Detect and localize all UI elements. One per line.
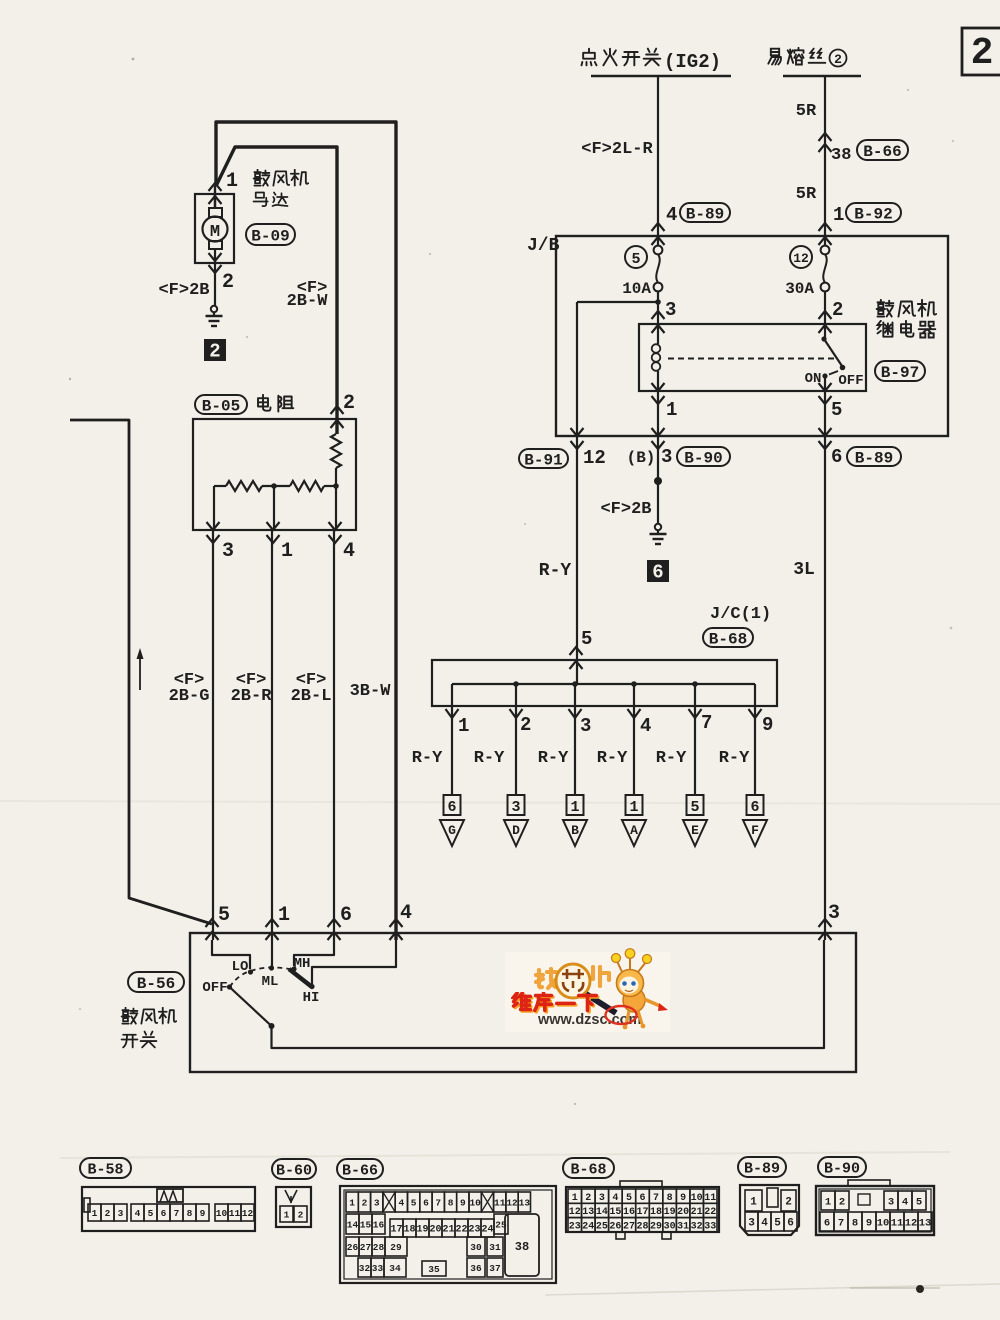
svg-text:11: 11	[891, 1217, 904, 1229]
svg-text:26: 26	[347, 1242, 359, 1253]
svg-text:29: 29	[390, 1242, 402, 1253]
svg-text:4: 4	[343, 540, 355, 563]
svg-text:3B-W: 3B-W	[350, 682, 392, 701]
svg-text:7: 7	[838, 1217, 844, 1229]
svg-text:B-09: B-09	[251, 227, 289, 245]
svg-text:21: 21	[691, 1207, 703, 1218]
svg-text:10: 10	[691, 1193, 703, 1204]
svg-text:7: 7	[653, 1193, 659, 1204]
svg-text:B-91: B-91	[524, 451, 562, 469]
svg-text:38: 38	[831, 146, 851, 165]
svg-text:OFF: OFF	[838, 373, 863, 389]
svg-text:3: 3	[222, 540, 234, 563]
svg-text:8: 8	[852, 1217, 858, 1229]
svg-text:R-Y: R-Y	[719, 749, 750, 768]
svg-text:B-68: B-68	[709, 630, 747, 648]
svg-text:B-92: B-92	[854, 205, 892, 223]
svg-text:3: 3	[748, 1217, 755, 1229]
svg-text:14: 14	[596, 1207, 608, 1218]
svg-text:6: 6	[447, 799, 456, 816]
svg-text:5: 5	[626, 1193, 632, 1204]
svg-text:B-90: B-90	[684, 449, 722, 467]
svg-text:2B-R: 2B-R	[231, 687, 273, 706]
svg-text:B-97: B-97	[881, 364, 919, 382]
svg-text:3: 3	[599, 1193, 605, 1204]
svg-text:30: 30	[470, 1242, 482, 1253]
svg-text:27: 27	[360, 1242, 372, 1253]
svg-text:2: 2	[222, 271, 234, 294]
svg-text:2: 2	[105, 1208, 111, 1219]
svg-text:33: 33	[372, 1263, 384, 1274]
svg-text:OFF: OFF	[202, 980, 227, 996]
svg-text:2: 2	[834, 52, 842, 67]
svg-text:12: 12	[569, 1207, 581, 1218]
svg-text:3: 3	[580, 715, 591, 737]
svg-text:B-58: B-58	[87, 1161, 123, 1178]
svg-text:16: 16	[623, 1207, 635, 1218]
svg-text:5: 5	[690, 799, 699, 816]
svg-text:ML: ML	[262, 974, 279, 990]
svg-text:2: 2	[298, 1209, 304, 1220]
svg-text:2: 2	[839, 1196, 845, 1208]
svg-text:25: 25	[596, 1221, 608, 1232]
svg-text:24: 24	[481, 1225, 493, 1236]
svg-text:4: 4	[666, 204, 677, 226]
svg-text:3: 3	[511, 799, 520, 816]
svg-text:2: 2	[585, 1193, 591, 1204]
svg-text:3: 3	[888, 1196, 894, 1208]
svg-text:B-89: B-89	[855, 449, 893, 467]
svg-text:9: 9	[762, 714, 773, 736]
svg-text:8: 8	[448, 1197, 454, 1208]
svg-text:6: 6	[824, 1217, 830, 1229]
svg-text:33: 33	[704, 1221, 716, 1232]
svg-text:<F>2L-R: <F>2L-R	[581, 140, 653, 159]
svg-text:2: 2	[362, 1197, 368, 1208]
svg-text:9: 9	[680, 1193, 686, 1204]
svg-text:J/C(1): J/C(1)	[710, 605, 771, 624]
svg-text:2B-G: 2B-G	[169, 687, 210, 706]
svg-text:14: 14	[347, 1219, 359, 1230]
svg-text:38: 38	[515, 1240, 529, 1254]
svg-text:9: 9	[200, 1208, 206, 1219]
svg-text:6: 6	[652, 562, 663, 584]
svg-text:30A: 30A	[785, 280, 814, 298]
svg-text:17: 17	[636, 1207, 648, 1218]
svg-text:4: 4	[135, 1208, 141, 1219]
svg-text:11: 11	[229, 1208, 241, 1219]
svg-text:B-90: B-90	[824, 1160, 860, 1177]
svg-text:R-Y: R-Y	[538, 749, 569, 768]
svg-text:E: E	[691, 823, 699, 838]
svg-text:10: 10	[216, 1208, 228, 1219]
svg-text:4: 4	[640, 715, 651, 737]
svg-text:B-66: B-66	[342, 1162, 378, 1179]
svg-text:1: 1	[278, 904, 290, 927]
svg-text:6: 6	[639, 1193, 645, 1204]
svg-text:B-05: B-05	[202, 397, 240, 415]
svg-text:6: 6	[340, 904, 352, 927]
svg-text:5: 5	[831, 399, 842, 421]
svg-text:1: 1	[284, 1209, 290, 1220]
svg-text:24: 24	[582, 1221, 594, 1232]
svg-text:1: 1	[572, 1193, 578, 1204]
svg-text:2: 2	[971, 32, 994, 75]
svg-text:2B-W: 2B-W	[287, 292, 329, 311]
svg-text:13: 13	[519, 1197, 531, 1208]
svg-text:28: 28	[636, 1221, 648, 1232]
svg-text:3: 3	[665, 299, 676, 321]
svg-text:29: 29	[650, 1221, 662, 1232]
svg-text:4: 4	[398, 1197, 404, 1208]
svg-text:7: 7	[435, 1197, 441, 1208]
svg-text:1: 1	[750, 1196, 757, 1208]
svg-text:4: 4	[400, 902, 412, 925]
svg-text:6: 6	[831, 446, 842, 468]
svg-text:13: 13	[919, 1217, 932, 1229]
svg-text:9: 9	[866, 1217, 872, 1229]
svg-text:31: 31	[677, 1221, 689, 1232]
svg-text:22: 22	[455, 1225, 467, 1236]
svg-text:27: 27	[623, 1221, 635, 1232]
svg-text:12: 12	[793, 251, 809, 266]
svg-text:R-Y: R-Y	[597, 749, 628, 768]
svg-text:R-Y: R-Y	[656, 749, 687, 768]
svg-text:6: 6	[750, 799, 759, 816]
svg-text:1: 1	[92, 1208, 98, 1219]
svg-text:12: 12	[583, 447, 606, 469]
svg-text:B-56: B-56	[137, 975, 175, 993]
svg-text:3L: 3L	[793, 560, 815, 580]
svg-text:8: 8	[667, 1193, 673, 1204]
svg-text:21: 21	[442, 1225, 454, 1236]
svg-text:4: 4	[612, 1193, 618, 1204]
svg-text:1: 1	[629, 799, 638, 816]
svg-text:10A: 10A	[622, 280, 651, 298]
svg-text:1: 1	[570, 799, 579, 816]
svg-text:5: 5	[581, 628, 592, 650]
svg-text:4: 4	[761, 1217, 768, 1229]
svg-text:12: 12	[242, 1208, 254, 1219]
svg-text:28: 28	[373, 1242, 385, 1253]
svg-text:4: 4	[902, 1196, 908, 1208]
svg-text:1: 1	[281, 540, 293, 563]
svg-text:(IG2): (IG2)	[664, 51, 721, 73]
svg-text:32: 32	[359, 1263, 371, 1274]
svg-text:A: A	[630, 823, 638, 838]
svg-text:1: 1	[666, 399, 677, 421]
svg-text:36: 36	[470, 1263, 482, 1274]
svg-text:35: 35	[428, 1264, 440, 1275]
svg-text:6: 6	[423, 1197, 429, 1208]
svg-text:5: 5	[631, 251, 640, 268]
svg-text:6: 6	[161, 1208, 167, 1219]
svg-text:10: 10	[877, 1217, 890, 1229]
svg-text:F: F	[751, 823, 759, 838]
svg-text:5: 5	[774, 1217, 781, 1229]
svg-text:5R: 5R	[796, 102, 817, 121]
svg-text:R-Y: R-Y	[539, 561, 572, 581]
svg-text:31: 31	[489, 1242, 501, 1253]
svg-text:5R: 5R	[796, 185, 817, 204]
svg-text:B-89: B-89	[744, 1160, 780, 1177]
svg-text:26: 26	[609, 1221, 621, 1232]
svg-text:3: 3	[828, 902, 840, 925]
svg-text:7: 7	[701, 712, 712, 734]
svg-text:18: 18	[650, 1207, 662, 1218]
svg-text:B-60: B-60	[276, 1162, 312, 1179]
svg-text:2: 2	[785, 1196, 792, 1208]
svg-text:15: 15	[360, 1219, 372, 1230]
svg-text:2: 2	[520, 714, 531, 736]
svg-text:34: 34	[389, 1263, 401, 1274]
svg-text:13: 13	[582, 1207, 594, 1218]
svg-text:1: 1	[349, 1197, 355, 1208]
svg-text:D: D	[512, 823, 520, 838]
svg-text:R-Y: R-Y	[412, 749, 443, 768]
svg-text:<F>2B: <F>2B	[158, 281, 209, 300]
svg-text:2: 2	[343, 392, 355, 415]
svg-text:18: 18	[403, 1225, 415, 1236]
svg-text:20: 20	[429, 1225, 441, 1236]
svg-text:HI: HI	[303, 990, 320, 1006]
svg-text:23: 23	[468, 1225, 480, 1236]
svg-text:2B-L: 2B-L	[291, 687, 332, 706]
svg-text:5: 5	[411, 1197, 417, 1208]
svg-text:MH: MH	[294, 956, 311, 972]
svg-text:(B): (B)	[627, 449, 656, 467]
svg-text:1: 1	[833, 204, 844, 226]
svg-text:11: 11	[494, 1197, 506, 1208]
svg-text:M: M	[210, 223, 220, 242]
svg-text:10: 10	[469, 1197, 481, 1208]
svg-text:23: 23	[569, 1221, 581, 1232]
svg-text:37: 37	[489, 1263, 501, 1274]
svg-text:17: 17	[390, 1225, 402, 1236]
svg-text:11: 11	[704, 1193, 716, 1204]
svg-text:3: 3	[118, 1208, 124, 1219]
svg-text:9: 9	[460, 1197, 466, 1208]
svg-text:5: 5	[218, 904, 230, 927]
svg-text:6: 6	[787, 1217, 794, 1229]
svg-text:20: 20	[677, 1207, 689, 1218]
svg-text:1: 1	[458, 715, 469, 737]
svg-text:J/B: J/B	[527, 236, 560, 256]
svg-text:22: 22	[704, 1207, 716, 1218]
svg-text:8: 8	[187, 1208, 193, 1219]
svg-text:B-89: B-89	[686, 205, 724, 223]
svg-text:15: 15	[609, 1207, 621, 1218]
svg-text:B-68: B-68	[570, 1161, 606, 1178]
svg-text:3: 3	[374, 1197, 380, 1208]
svg-text:B: B	[571, 823, 579, 838]
svg-text:1: 1	[825, 1196, 831, 1208]
svg-text:19: 19	[416, 1225, 428, 1236]
svg-text:5: 5	[916, 1196, 922, 1208]
svg-text:<F>2B: <F>2B	[600, 500, 651, 519]
svg-text:32: 32	[691, 1221, 703, 1232]
svg-text:12: 12	[905, 1217, 918, 1229]
svg-text:7: 7	[174, 1208, 180, 1219]
svg-text:B-66: B-66	[863, 143, 901, 161]
svg-text:12: 12	[506, 1197, 518, 1208]
svg-text:2: 2	[832, 299, 843, 321]
svg-text:19: 19	[664, 1207, 676, 1218]
svg-text:30: 30	[664, 1221, 676, 1232]
svg-text:5: 5	[148, 1208, 154, 1219]
svg-text:16: 16	[373, 1219, 385, 1230]
svg-text:R-Y: R-Y	[474, 749, 505, 768]
svg-text:G: G	[448, 823, 456, 838]
svg-text:3: 3	[661, 446, 672, 468]
svg-text:1: 1	[226, 170, 238, 193]
svg-text:2: 2	[209, 341, 220, 363]
